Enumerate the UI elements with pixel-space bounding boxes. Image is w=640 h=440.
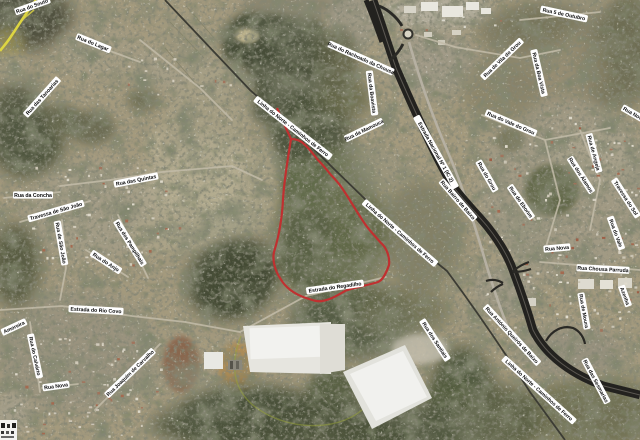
svg-text:Rua da Concha: Rua da Concha xyxy=(14,193,52,199)
